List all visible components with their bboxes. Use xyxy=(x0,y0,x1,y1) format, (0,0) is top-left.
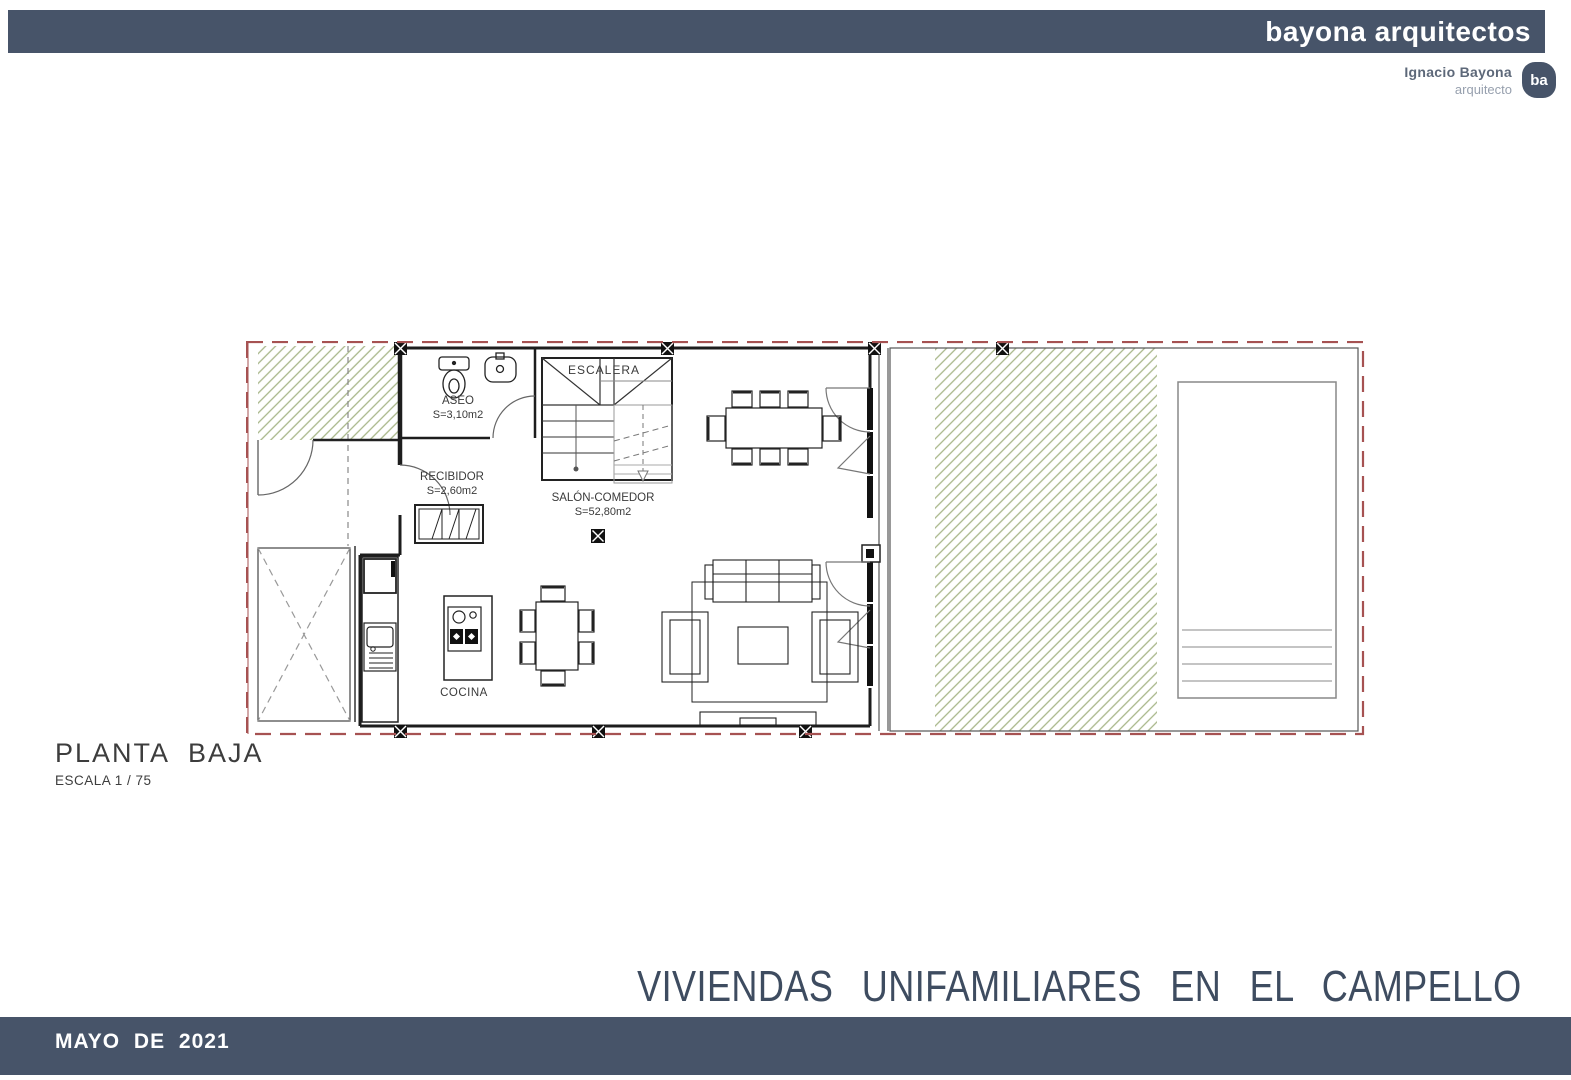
header-bar: bayona arquitectos xyxy=(8,10,1545,53)
plan-name: PLANTA BAJA xyxy=(55,738,264,769)
kitchen-island xyxy=(444,596,492,680)
label-recibidor: RECIBIDOR xyxy=(420,471,484,483)
label-salon-area: S=52,80m2 xyxy=(575,506,632,518)
entrance-gate xyxy=(258,440,400,495)
label-recibidor-area: S=2,60m2 xyxy=(427,485,477,497)
toilet-icon xyxy=(439,357,469,398)
architect-role: arquitecto xyxy=(1404,82,1512,98)
brand-text: bayona arquitectos xyxy=(1265,16,1531,48)
plan-scale: ESCALA 1 / 75 xyxy=(55,773,264,788)
garden-hatch-left xyxy=(258,346,400,440)
floor-plan-drawing: ESCALERA ASEO S=3,10m2 RECIBIDOR S=2,60m… xyxy=(246,341,1366,739)
hall-wardrobe xyxy=(415,505,483,543)
footer-bar: MAYO DE 2021 xyxy=(0,1017,1571,1075)
project-title: VIVIENDAS UNIFAMILIARES EN EL CAMPELLO xyxy=(638,962,1522,1012)
sofa-set xyxy=(662,560,858,725)
label-aseo-area: S=3,10m2 xyxy=(433,409,483,421)
dining-table xyxy=(707,391,841,465)
architect-name: Ignacio Bayona xyxy=(1404,64,1512,82)
label-escalera: ESCALERA xyxy=(568,363,640,377)
pillars xyxy=(394,342,1009,738)
kitchen-counter xyxy=(362,557,398,722)
architect-block: Ignacio Bayona arquitecto ba xyxy=(1404,62,1556,98)
sink-icon xyxy=(485,353,516,382)
kitchen-table xyxy=(520,586,594,686)
date-text: MAYO DE 2021 xyxy=(55,1030,230,1054)
title-block: PLANTA BAJA ESCALA 1 / 75 xyxy=(55,738,264,788)
ba-logo-icon: ba xyxy=(1522,62,1556,98)
swimming-pool xyxy=(1178,382,1336,698)
label-salon: SALÓN-COMEDOR xyxy=(552,491,655,504)
label-cocina: COCINA xyxy=(440,687,488,699)
garden-hatch-right xyxy=(935,348,1157,731)
aseo-door xyxy=(493,396,535,438)
window-wall xyxy=(826,388,880,686)
label-aseo: ASEO xyxy=(442,395,474,407)
